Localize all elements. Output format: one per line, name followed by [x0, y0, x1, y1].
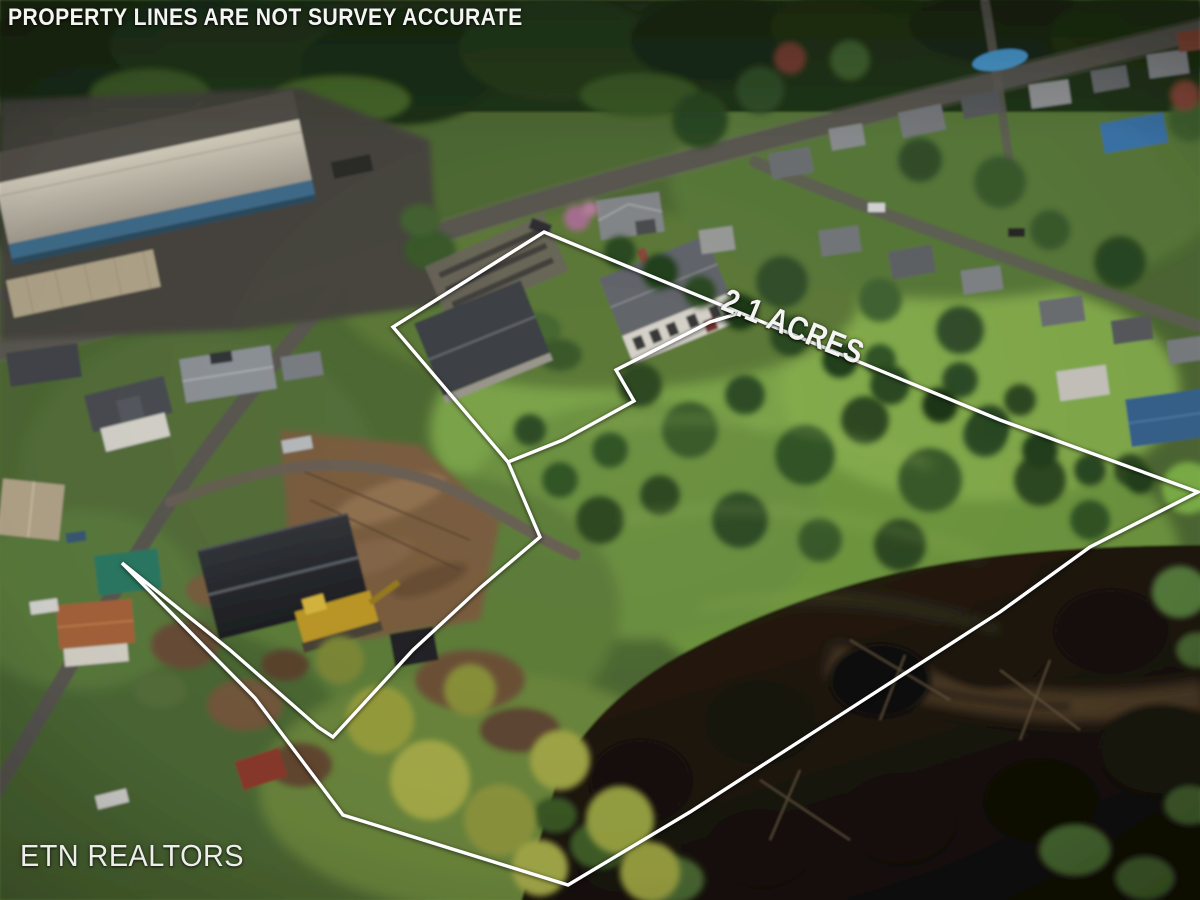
boundary-notch-line: [508, 313, 740, 462]
boundary-main-line: [122, 232, 1198, 885]
property-boundary-overlay: [0, 0, 1200, 900]
disclaimer-banner: PROPERTY LINES ARE NOT SURVEY ACCURATE: [8, 4, 523, 32]
listing-photo: PROPERTY LINES ARE NOT SURVEY ACCURATE 2…: [0, 0, 1200, 900]
brand-watermark: ETN REALTORS: [20, 838, 244, 874]
